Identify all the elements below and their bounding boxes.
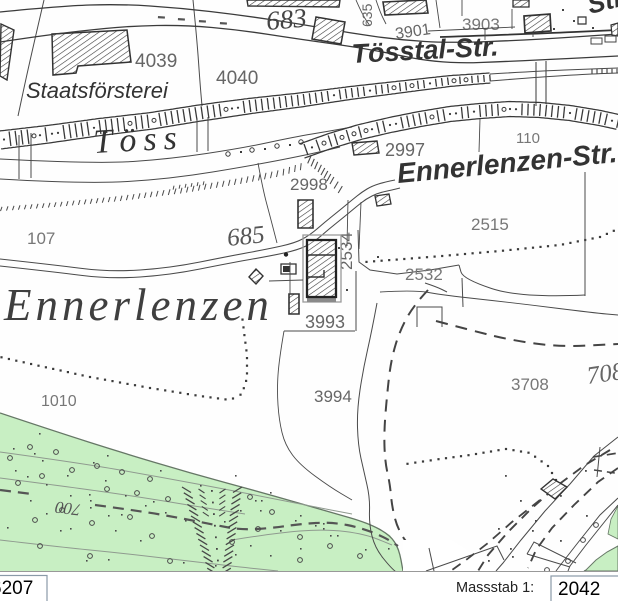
svg-text:683: 683 [265,3,308,36]
svg-text:3994: 3994 [314,387,352,406]
svg-text:6207: 6207 [0,578,33,599]
svg-text:107: 107 [27,229,55,248]
svg-text:685: 685 [226,221,266,252]
svg-text:4039: 4039 [135,51,177,72]
svg-text:700: 700 [54,497,82,519]
svg-text:Staatsförsterei: Staatsförsterei [26,78,169,103]
svg-text:3708: 3708 [511,375,549,394]
svg-text:2532: 2532 [405,265,443,284]
svg-text:708: 708 [585,358,618,390]
svg-text:2042: 2042 [558,579,600,600]
svg-text:1010: 1010 [41,393,77,410]
svg-text:Töss: Töss [92,119,184,161]
svg-text:2534: 2534 [337,232,356,270]
svg-text:635: 635 [359,3,375,27]
svg-text:Ennerlenzen: Ennerlenzen [3,280,273,330]
svg-text:2998: 2998 [290,175,328,194]
svg-text:3993: 3993 [305,312,345,332]
svg-text:2515: 2515 [471,215,509,234]
svg-text:Massstab 1:: Massstab 1: [456,580,534,596]
svg-text:4040: 4040 [216,68,258,89]
